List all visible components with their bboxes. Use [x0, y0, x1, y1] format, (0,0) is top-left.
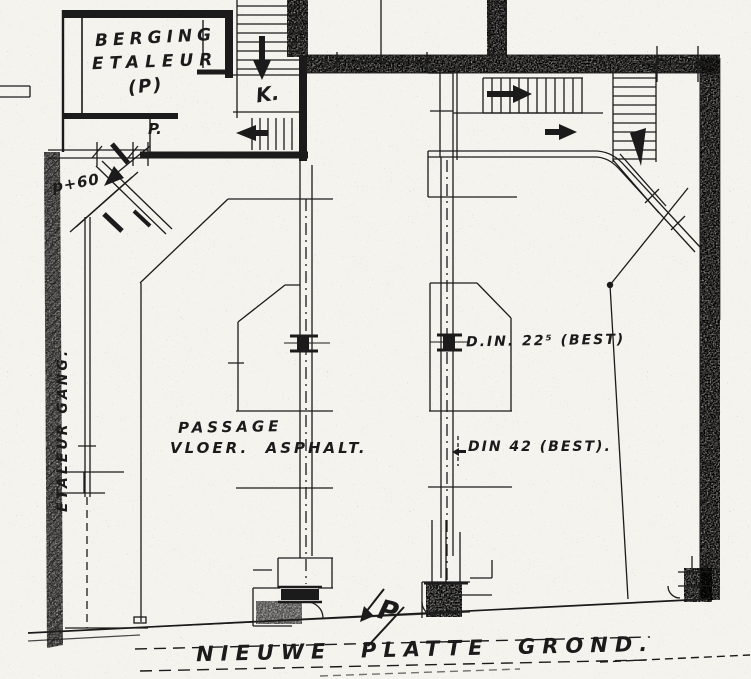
junction-dot: [607, 282, 613, 288]
door-label-p: P.: [148, 122, 163, 138]
beam-label-lower: DIN 42 (BEST).: [468, 440, 612, 455]
stair-label-k: K.: [255, 82, 281, 106]
passage-label-line2: VLOER. ASPHALT.: [170, 441, 368, 457]
passage-label-line1: PASSAGE: [178, 419, 283, 437]
beam-label-upper: D.IN. 22⁵ (BEST): [466, 333, 625, 350]
corridor-label: ETALEUR GANG.: [56, 292, 71, 512]
plan-linework: [0, 0, 751, 679]
room-label-p: (P): [127, 76, 164, 99]
scanned-floor-plan: BERGING ETALEUR (P) K. P. p+60 ETALEUR G…: [0, 0, 751, 679]
paper-grain-texture: [0, 0, 751, 679]
